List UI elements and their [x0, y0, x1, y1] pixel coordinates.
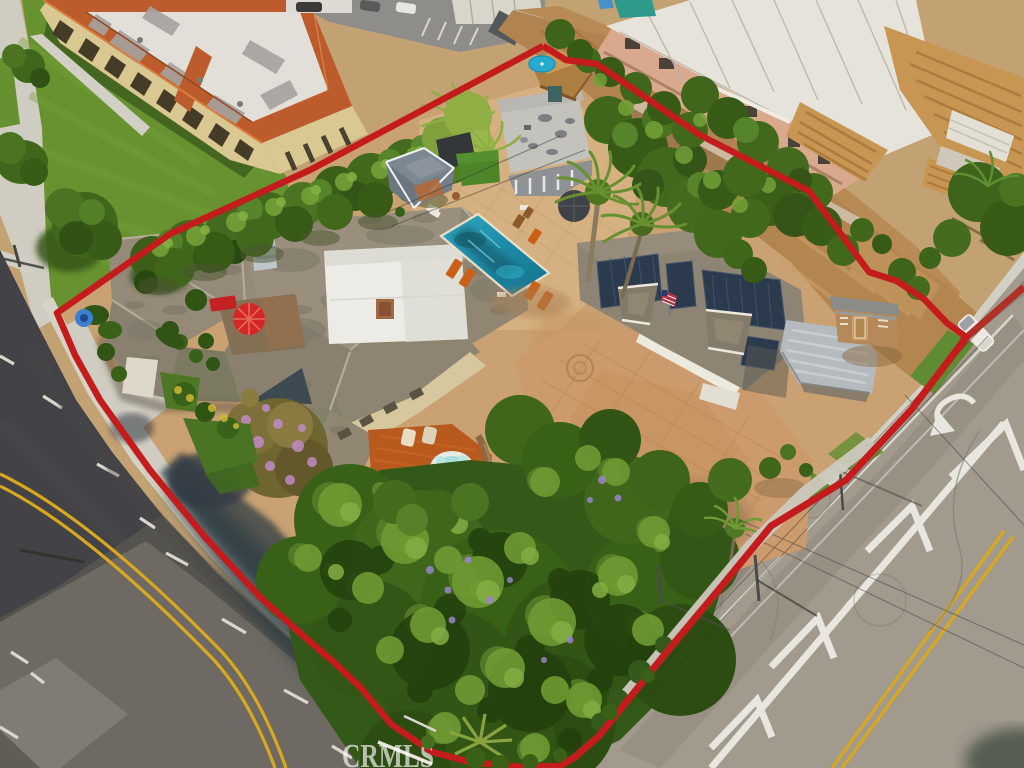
- svg-text:CRMLS: CRMLS: [342, 738, 434, 768]
